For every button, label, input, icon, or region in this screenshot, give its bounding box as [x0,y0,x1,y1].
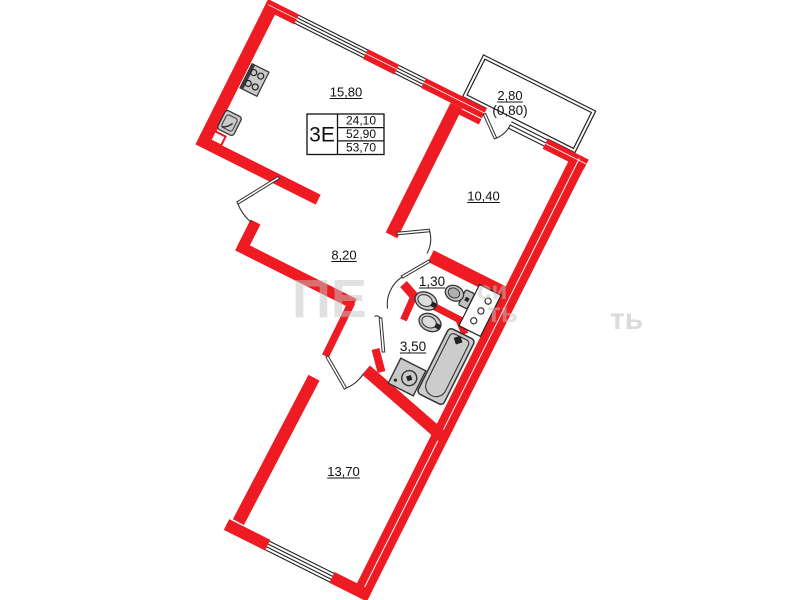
svg-text:24,10: 24,10 [346,114,376,128]
svg-text:10,40: 10,40 [467,189,500,204]
svg-text:ть: ть [610,303,643,336]
svg-text:8,20: 8,20 [331,248,356,263]
svg-text:ть: ть [487,297,518,328]
svg-text:52,90: 52,90 [346,127,376,141]
svg-text:53,70: 53,70 [346,140,376,154]
svg-text:13,70: 13,70 [327,464,360,479]
svg-text:1,30: 1,30 [419,274,445,289]
svg-text:15,80: 15,80 [330,85,363,100]
svg-text:(0,80): (0,80) [492,103,527,118]
svg-text:3Е: 3Е [309,124,335,147]
svg-text:ПЕ: ПЕ [292,269,367,329]
svg-text:3,50: 3,50 [400,339,426,354]
svg-text:2,80: 2,80 [497,88,522,103]
